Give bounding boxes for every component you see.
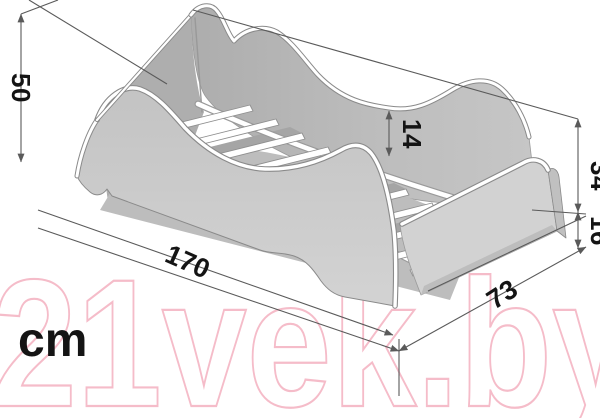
- rail-depth-label: 14: [397, 119, 427, 149]
- watermark: 21vek.by: [0, 241, 600, 418]
- bed-dimension-diagram: 21vek.by: [0, 0, 600, 418]
- base-height-label: 16: [585, 216, 600, 246]
- side-height-label: 50: [6, 73, 36, 103]
- units-label: cm: [18, 314, 87, 367]
- footboard-height-label: 34: [585, 161, 600, 191]
- watermark-text: 21vek.by: [0, 241, 600, 418]
